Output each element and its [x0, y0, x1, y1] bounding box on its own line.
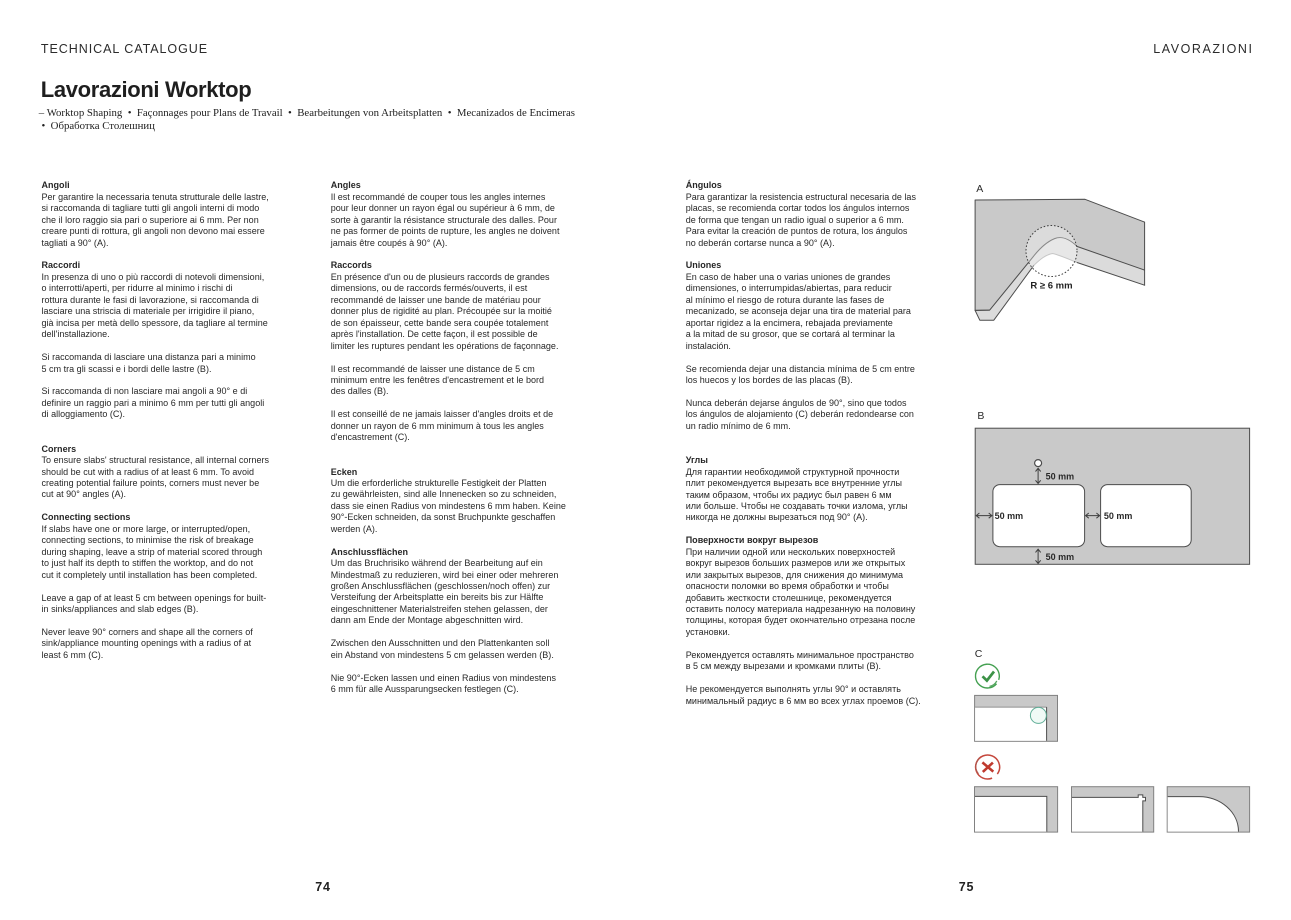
svg-text:A: A — [976, 183, 983, 195]
svg-text:50 mm: 50 mm — [995, 511, 1024, 521]
svg-text:B: B — [977, 410, 984, 422]
svg-text:50 mm: 50 mm — [1046, 472, 1075, 482]
svg-text:50 mm: 50 mm — [1104, 511, 1133, 521]
svg-text:50 mm: 50 mm — [1046, 552, 1075, 562]
svg-text:C: C — [975, 648, 983, 660]
svg-text:R ≥ 6 mm: R ≥ 6 mm — [1030, 280, 1072, 291]
